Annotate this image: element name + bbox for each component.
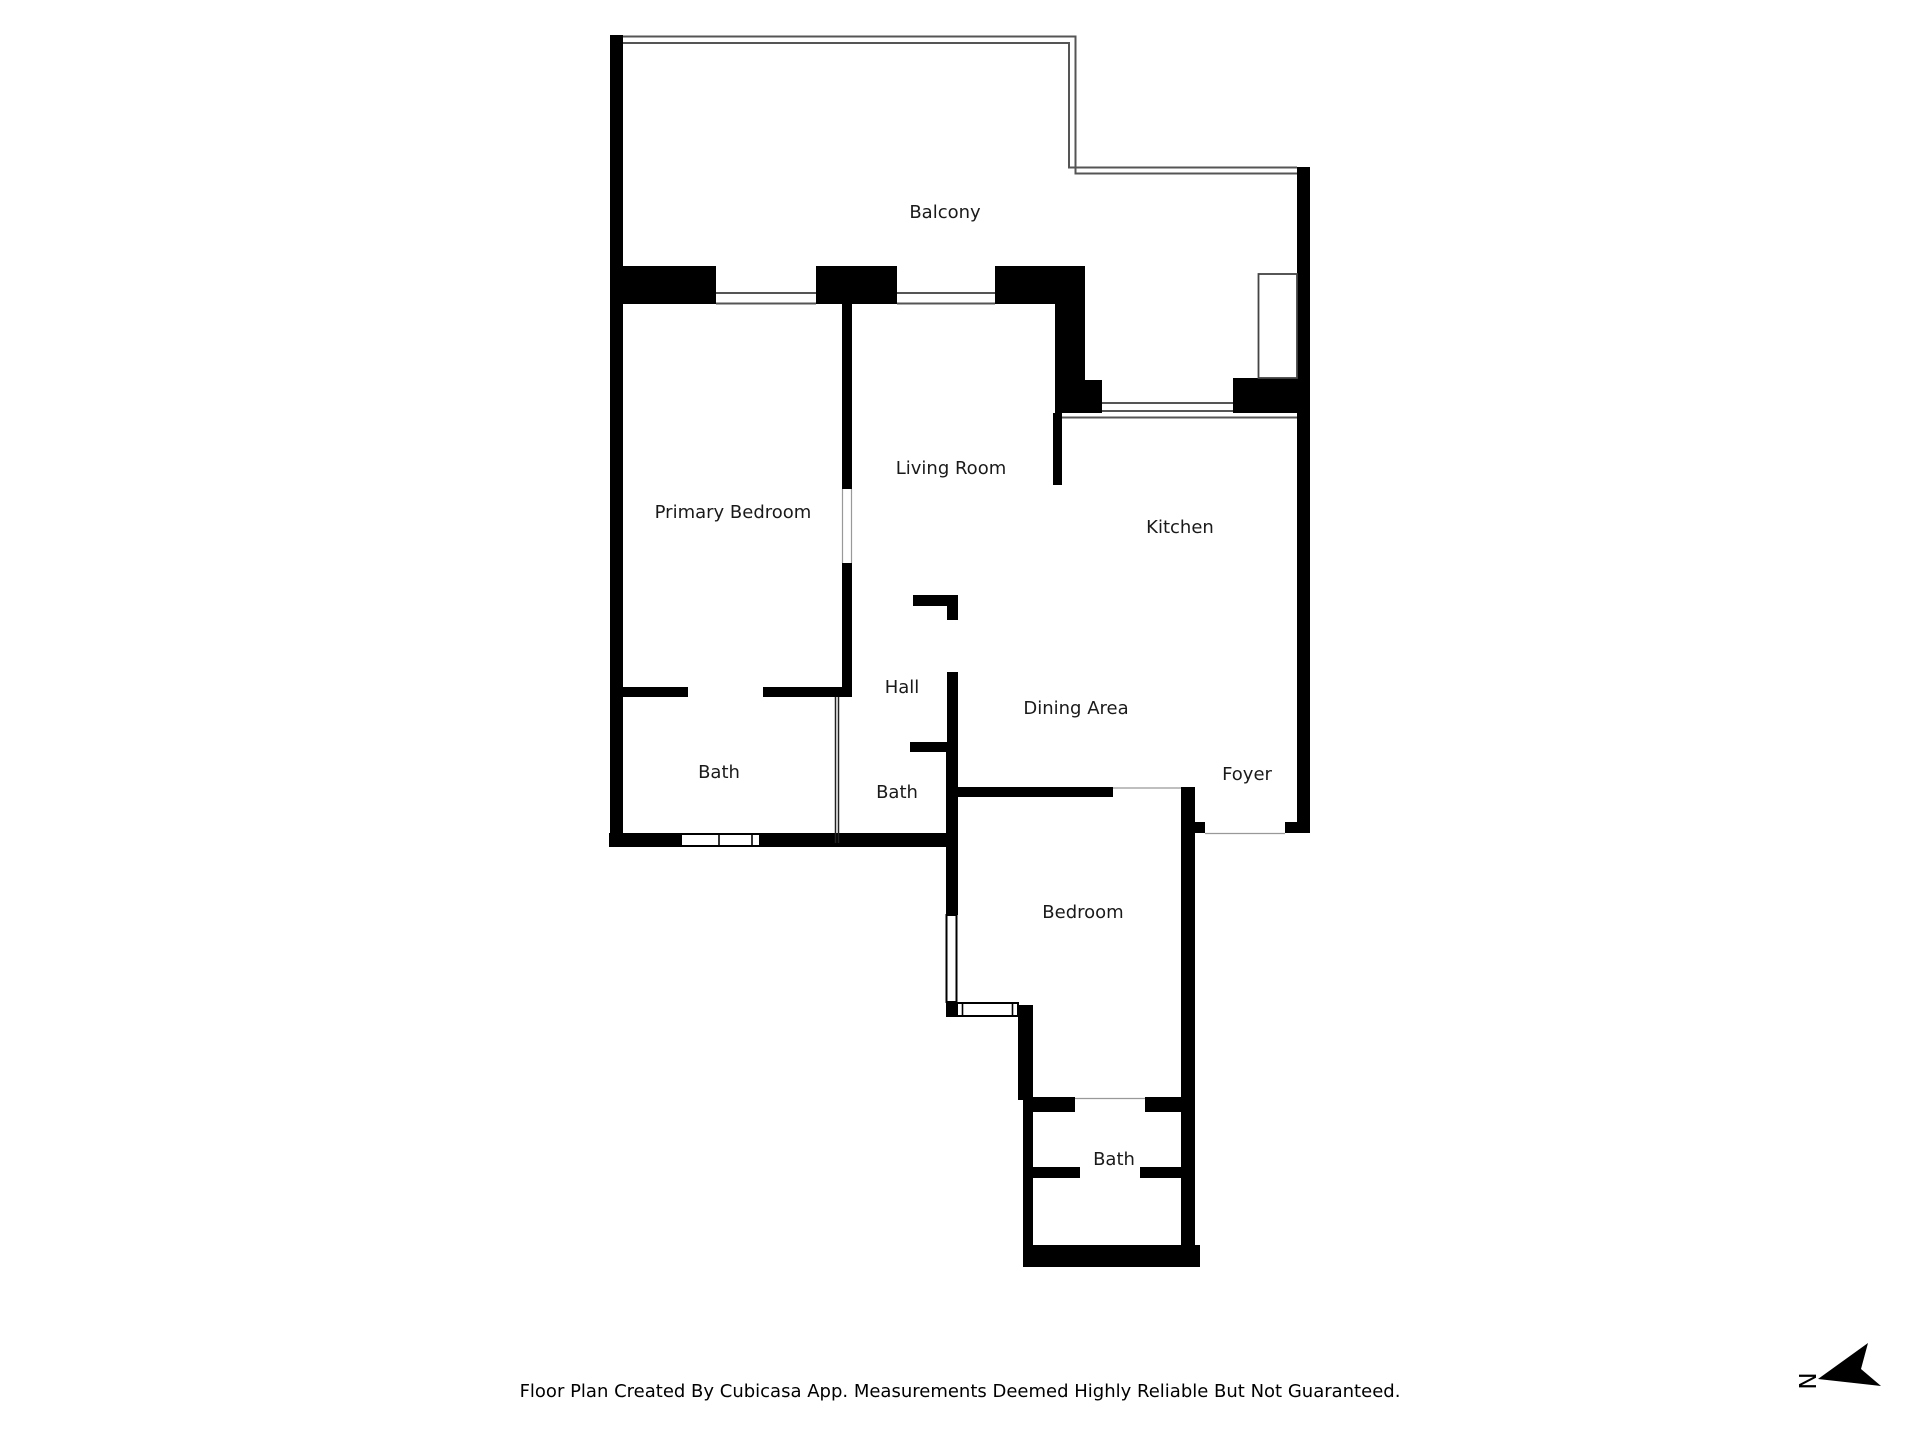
- compass: N: [1793, 1343, 1881, 1390]
- floor-plan-page: Balcony Primary Bedroom Living Room Kitc…: [0, 0, 1920, 1440]
- floor-plan-svg: Balcony Primary Bedroom Living Room Kitc…: [0, 0, 1920, 1440]
- room-label-bath-2: Bath: [876, 782, 918, 803]
- room-label-dining-area: Dining Area: [1023, 698, 1128, 719]
- kitchen-fixture: [1259, 274, 1298, 378]
- room-label-foyer: Foyer: [1222, 764, 1272, 785]
- room-label-bath-1: Bath: [698, 762, 740, 783]
- north-letter: N: [1793, 1372, 1819, 1389]
- windows: [681, 834, 1018, 1016]
- footer-disclaimer: Floor Plan Created By Cubicasa App. Meas…: [520, 1381, 1401, 1402]
- north-arrow-icon: [1818, 1343, 1881, 1386]
- room-label-kitchen: Kitchen: [1146, 517, 1214, 538]
- room-labels: Balcony Primary Bedroom Living Room Kitc…: [655, 202, 1273, 1170]
- balcony-outline: [612, 37, 1297, 174]
- room-label-bedroom: Bedroom: [1042, 902, 1123, 923]
- room-label-primary-bedroom: Primary Bedroom: [655, 502, 812, 523]
- room-label-bath-3: Bath: [1093, 1149, 1135, 1170]
- room-label-living-room: Living Room: [896, 458, 1007, 479]
- room-label-balcony: Balcony: [909, 202, 981, 223]
- room-label-hall: Hall: [885, 677, 920, 698]
